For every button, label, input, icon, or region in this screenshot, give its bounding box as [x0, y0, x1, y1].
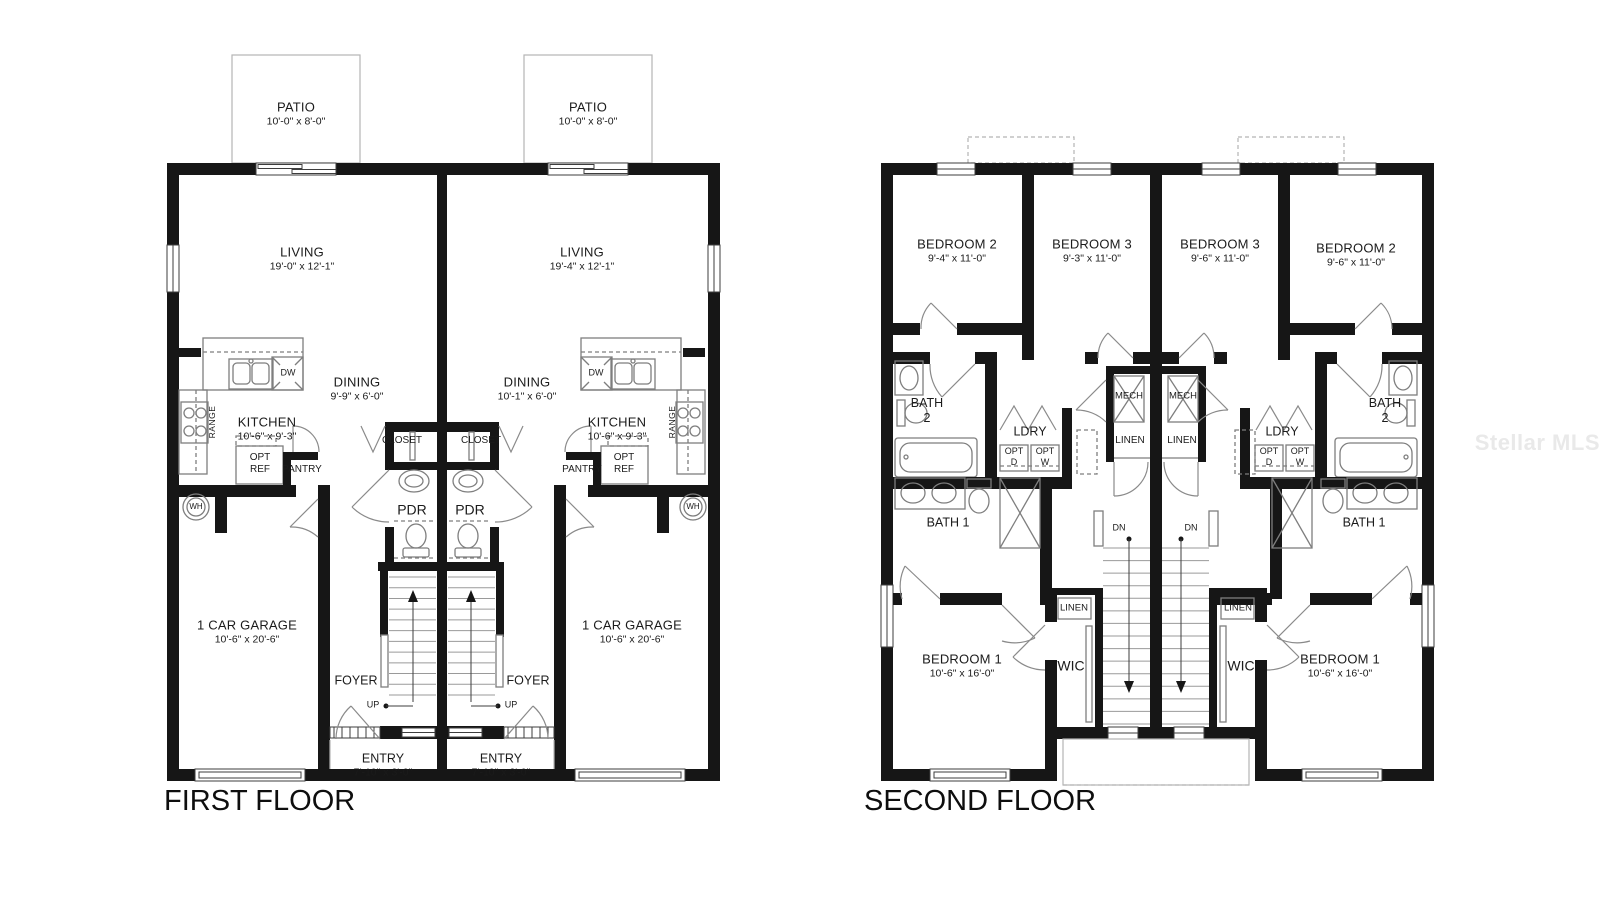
- room-label-living-b: LIVING19'-4" x 12'-1": [550, 225, 615, 272]
- label-bath2-a: BATH 2: [911, 396, 943, 426]
- porch-roof-outline: [1063, 739, 1249, 785]
- room-label-bedroom2-a: BEDROOM 29'-4" x 11'-0": [917, 217, 997, 264]
- label-opt-w-b: OPT W: [1291, 446, 1310, 468]
- label-dn-a: DN: [1113, 523, 1126, 534]
- room-label-entry-b: ENTRY7'-10" x 3'-0": [472, 733, 531, 780]
- stair-rail: [381, 635, 388, 687]
- sink-icon: [399, 470, 429, 492]
- stair-rail: [1209, 511, 1218, 546]
- label-wh-b: WH: [686, 502, 699, 512]
- label-linen-a: LINEN: [1115, 435, 1144, 447]
- label-range-b: RANGE: [667, 406, 677, 439]
- room-label-garage-a: 1 CAR GARAGE10'-6" x 20'-6": [197, 598, 297, 645]
- toilet-icon: [406, 524, 426, 548]
- room-label-bedroom1-b: BEDROOM 110'-6" x 16'-0": [1300, 632, 1380, 679]
- range-icon: [181, 402, 208, 443]
- toilet-icon: [897, 400, 905, 426]
- party-wall-sf: [1150, 163, 1162, 739]
- label-opt-d-b: OPT D: [1260, 446, 1279, 468]
- label-bath1-b: BATH 1: [1343, 516, 1386, 531]
- label-pdr-b: PDR: [455, 502, 485, 519]
- label-closet-a: CLOSET: [382, 435, 422, 447]
- sink-icon: [453, 470, 483, 492]
- staircase-down-b: [1162, 548, 1209, 724]
- label-bath1-a: BATH 1: [927, 516, 970, 531]
- room-label-garage-b: 1 CAR GARAGE10'-6" x 20'-6": [582, 598, 682, 645]
- room-label-bedroom2-b: BEDROOM 29'-6" x 11'-0": [1316, 221, 1396, 268]
- label-wic-a: WIC: [1057, 658, 1084, 675]
- label-dw-a: DW: [281, 368, 296, 379]
- label-bath2-b: BATH 2: [1369, 396, 1401, 426]
- room-label-dining-b: DINING10'-1" x 6'-0": [498, 355, 557, 402]
- stair-rail: [496, 635, 503, 687]
- label-wic-b: WIC: [1227, 658, 1254, 675]
- room-label-living-a: LIVING19'-0" x 12'-1": [270, 225, 335, 272]
- toilet-icon: [458, 524, 478, 548]
- sink-icon: [900, 366, 918, 390]
- room-label-entry-a: ENTRY7'-10" x 3'-0": [354, 733, 413, 780]
- closet-rod-icon: [1220, 626, 1226, 722]
- room-label-dining-a: DINING9'-9" x 6'-0": [331, 355, 384, 402]
- stair-rail: [1094, 511, 1103, 546]
- staircase-down-a: [1103, 548, 1150, 724]
- second-floor-title: SECOND FLOOR: [864, 785, 1096, 818]
- label-opt-w-a: OPT W: [1036, 446, 1055, 468]
- label-foyer-b: FOYER: [506, 674, 549, 689]
- toilet-icon: [1407, 400, 1415, 426]
- sink-icon: [1394, 366, 1412, 390]
- label-linen-b: LINEN: [1167, 435, 1196, 447]
- label-dn-b: DN: [1185, 523, 1198, 534]
- label-mech-a: MECH: [1115, 390, 1143, 401]
- room-label-patio-a: PATIO10'-0" x 8'-0": [267, 80, 326, 127]
- label-opt-d-a: OPT D: [1005, 446, 1024, 468]
- label-closet-b: CLOSET: [461, 435, 501, 447]
- room-label-bedroom3-a: BEDROOM 39'-3" x 11'-0": [1052, 217, 1132, 264]
- label-linen2-a: LINEN: [1060, 602, 1088, 613]
- room-label-kitchen-b: KITCHEN10'-6" x 9'-3": [588, 395, 647, 442]
- label-mech-b: MECH: [1169, 390, 1197, 401]
- label-linen2-b: LINEN: [1224, 602, 1252, 613]
- label-pantry-b: PANTRY: [562, 464, 602, 476]
- closet-rod-icon: [1086, 626, 1092, 722]
- label-wh-a: WH: [189, 502, 202, 512]
- label-foyer-a: FOYER: [334, 674, 377, 689]
- floor-plan-page: PATIO10'-0" x 8'-0" LIVING19'-0" x 12'-1…: [0, 0, 1600, 899]
- label-ldry-b: LDRY: [1265, 425, 1298, 440]
- label-opt-ref-a: OPT REF: [250, 452, 271, 476]
- label-up-a: UP: [367, 700, 380, 711]
- room-label-patio-b: PATIO10'-0" x 8'-0": [559, 80, 618, 127]
- label-pdr-a: PDR: [397, 502, 427, 519]
- party-wall-ff: [437, 163, 447, 781]
- label-pantry-a: PANTRY: [282, 464, 322, 476]
- stellar-mls-watermark: Stellar MLS: [1475, 430, 1600, 456]
- label-range-a: RANGE: [207, 406, 217, 439]
- first-floor-title: FIRST FLOOR: [164, 785, 355, 818]
- floor-plan-drawing: [0, 0, 1600, 899]
- label-up-b: UP: [505, 700, 518, 711]
- room-label-bedroom1-a: BEDROOM 110'-6" x 16'-0": [922, 632, 1002, 679]
- label-opt-ref-b: OPT REF: [614, 452, 635, 476]
- label-ldry-a: LDRY: [1013, 425, 1046, 440]
- room-label-bedroom3-b: BEDROOM 39'-6" x 11'-0": [1180, 217, 1260, 264]
- room-label-kitchen-a: KITCHEN10'-6" x 9'-3": [238, 395, 297, 442]
- label-dw-b: DW: [589, 368, 604, 379]
- range-icon: [676, 402, 703, 443]
